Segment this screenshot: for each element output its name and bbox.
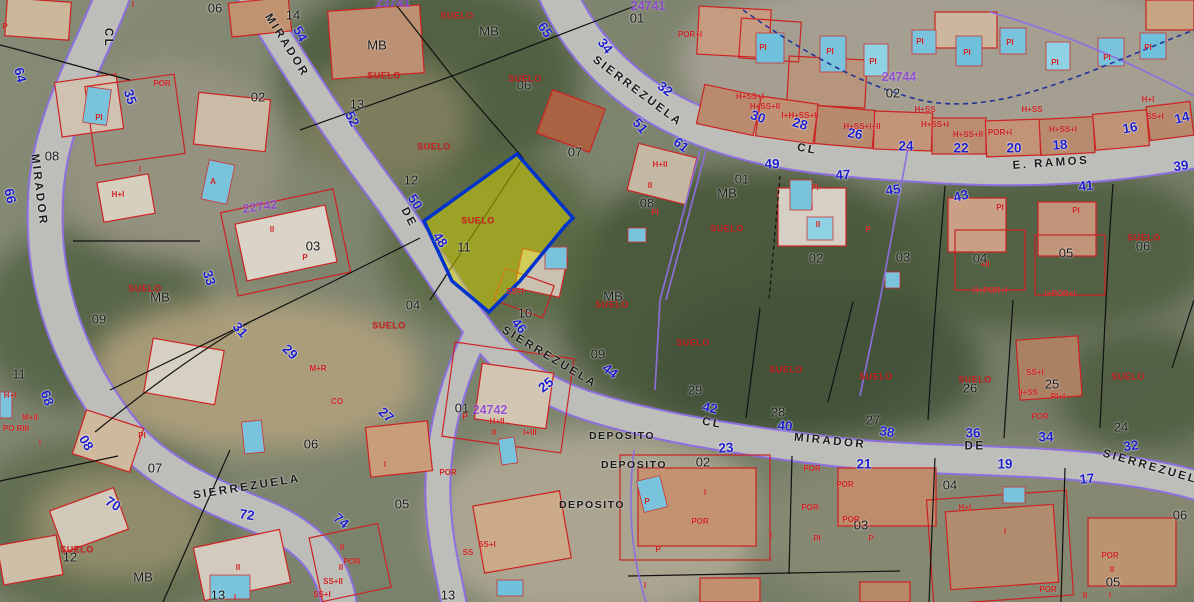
- building-annotation-label: PI: [1006, 39, 1014, 47]
- parcel-number-label: 06: [304, 438, 318, 451]
- parcel-number-label: 05: [1059, 247, 1073, 260]
- street-number-label: 31: [230, 320, 250, 340]
- parcel-number-label: 06: [208, 2, 222, 15]
- suelo-label: SUELO: [440, 12, 474, 21]
- building-annotation-label: SS+I: [478, 541, 496, 549]
- building-annotation-label: II: [236, 564, 240, 572]
- parcel-number-label: 11: [12, 368, 26, 381]
- building-annotation-label: PI: [1072, 207, 1080, 215]
- suelo-label: SUELO: [859, 373, 893, 382]
- parcel-number-label: 13: [211, 589, 225, 602]
- parcel-number-label: 04: [943, 479, 957, 492]
- building-annotation-label: II: [816, 221, 820, 229]
- deposito-label: DEPOSITO: [589, 431, 655, 442]
- street-number-label: 51: [630, 116, 650, 136]
- building-annotation-label: H+SS: [1021, 106, 1042, 114]
- building-annotation-label: POR: [343, 558, 360, 566]
- building-annotation-label: POR: [801, 504, 818, 512]
- street-number-label: 32: [1123, 438, 1140, 453]
- building-annotation-label: PI: [1144, 44, 1152, 52]
- building-annotation-label: P: [462, 413, 467, 421]
- building-annotation-label: POR: [153, 80, 170, 88]
- building-annotation-label: M+R: [309, 365, 326, 373]
- parcel-number-label: 02: [251, 91, 265, 104]
- building-annotation-label: I+POR+I: [1044, 290, 1075, 298]
- street-number-label: 29: [280, 342, 300, 362]
- parcel-number-label: 11: [457, 241, 471, 254]
- suelo-label: SUELO: [60, 546, 94, 555]
- building-annotation-label: I: [234, 594, 236, 602]
- building-annotation-label: II: [1083, 592, 1087, 600]
- street-number-label: 34: [1038, 430, 1053, 444]
- building-annotation-label: H+II: [653, 161, 668, 169]
- building-annotation-label: II: [648, 182, 652, 190]
- building-annotation-label: A: [210, 178, 216, 186]
- street-number-label: 45: [885, 182, 902, 197]
- parcel-number-label: MB: [133, 571, 153, 584]
- building-annotation-label: PI: [138, 432, 146, 440]
- suelo-label: SUELO: [958, 376, 992, 385]
- parcel-number-label: 05: [395, 498, 409, 511]
- parcel-number-label: 03: [896, 251, 910, 264]
- building-annotation-label: P: [868, 535, 873, 543]
- building-annotation-label: I: [132, 1, 134, 9]
- parcel-id-label: 22742: [242, 198, 278, 215]
- street-number-label: 72: [239, 507, 256, 522]
- building-annotation-label: II: [339, 564, 343, 572]
- parcel-number-label: 14: [286, 9, 300, 22]
- building-annotation-label: I: [384, 461, 386, 469]
- building-annotation-label: POR: [1039, 586, 1056, 594]
- street-name-label: SIERREZUELA: [1101, 448, 1194, 489]
- parcel-number-label: 02: [696, 456, 710, 469]
- building-annotation-label: POR+I: [988, 129, 1012, 137]
- building-annotation-label: PI: [916, 38, 924, 46]
- building-annotation-label: I: [1004, 528, 1006, 536]
- parcel-number-label: 03: [306, 240, 320, 253]
- building-annotation-label: POR+I: [678, 31, 702, 39]
- suelo-label: SUELO: [710, 225, 744, 234]
- suelo-label: SUELO: [676, 339, 710, 348]
- street-name-label: MIRADOR: [28, 153, 48, 226]
- building-annotation-label: H+I: [4, 392, 17, 400]
- parcel-number-label: 24: [1114, 421, 1128, 434]
- street-number-label: 25: [536, 375, 556, 395]
- street-number-label: 35: [121, 88, 138, 106]
- street-number-label: 36: [965, 426, 980, 440]
- parcel-number-label: 09: [92, 313, 106, 326]
- street-number-label: 70: [103, 494, 123, 513]
- street-number-label: 64: [12, 66, 29, 84]
- suelo-label: SUELO: [367, 72, 401, 81]
- street-number-label: 22: [953, 141, 968, 155]
- building-annotation-label: H+SS: [914, 106, 935, 114]
- parcel-number-label: 01: [630, 12, 644, 25]
- building-annotation-label: PI+I: [1051, 393, 1065, 401]
- parcel-number-label: 06: [1173, 509, 1187, 522]
- suelo-label: SUELO: [128, 285, 162, 294]
- building-annotation-label: SS+I: [1026, 369, 1044, 377]
- building-annotation-label: PI: [651, 209, 659, 217]
- street-number-label: 32: [655, 79, 675, 99]
- building-annotation-label: POR: [1101, 552, 1118, 560]
- building-annotation-label: I: [811, 204, 813, 212]
- deposito-label: DEPOSITO: [601, 460, 667, 471]
- building-annotation-label: P: [302, 254, 307, 262]
- street-number-label: 74: [331, 511, 351, 531]
- parcel-number-label: MB: [479, 25, 499, 38]
- street-number-label: 52: [343, 109, 362, 129]
- map-label-layer: CLMIRADORMIRADORSIERREZUELACLE. RAMOSDES…: [0, 0, 1194, 602]
- street-number-label: 43: [952, 188, 970, 205]
- street-number-label: 23: [718, 441, 734, 456]
- building-annotation-label: POR: [691, 518, 708, 526]
- building-annotation-label: M+II: [22, 414, 38, 422]
- building-annotation-label: H+SS+I: [921, 121, 949, 129]
- street-number-label: 24: [898, 139, 913, 153]
- building-annotation-label: PI: [869, 58, 877, 66]
- street-number-label: 14: [1173, 110, 1191, 127]
- building-annotation-label: POR: [842, 516, 859, 524]
- parcel-number-label: 02: [809, 252, 823, 265]
- street-number-label: 40: [777, 419, 793, 434]
- parcel-number-label: 05: [1106, 576, 1120, 589]
- street-number-label: 19: [997, 457, 1012, 471]
- street-number-label: 21: [856, 457, 871, 471]
- building-annotation-label: SS: [463, 549, 474, 557]
- street-name-label: CL: [101, 28, 113, 48]
- building-annotation-label: CO: [331, 398, 343, 406]
- parcel-id-label: 24742: [473, 404, 508, 417]
- building-annotation-label: H+I: [1142, 96, 1155, 104]
- building-annotation-label: SS+II: [323, 578, 343, 586]
- parcel-number-label: 01: [735, 173, 749, 186]
- street-number-label: 08: [76, 433, 95, 453]
- suelo-label: SUELO: [508, 75, 542, 84]
- building-annotation-label: H+POR+I: [973, 287, 1008, 295]
- street-number-label: 48: [430, 230, 450, 250]
- building-annotation-label: +II: [980, 261, 989, 269]
- building-annotation-label: PI: [1051, 59, 1059, 67]
- street-name-label: MIRADOR: [793, 432, 866, 451]
- parcel-number-label: 27: [866, 414, 880, 427]
- cadastral-map-viewport[interactable]: CLMIRADORMIRADORSIERREZUELACLE. RAMOSDES…: [0, 0, 1194, 602]
- parcel-number-label: 09: [591, 348, 605, 361]
- building-annotation-label: H+I: [112, 191, 125, 199]
- building-annotation-label: II: [270, 226, 274, 234]
- building-annotation-label: I: [704, 489, 706, 497]
- street-number-label: 38: [879, 424, 896, 439]
- street-number-label: 47: [835, 168, 851, 183]
- building-annotation-label: H+I: [959, 504, 972, 512]
- street-number-label: 34: [595, 36, 615, 56]
- street-name-label: SIERREZUELA: [192, 474, 301, 502]
- building-annotation-label: PI: [811, 184, 819, 192]
- street-number-label: 20: [1006, 141, 1021, 155]
- building-annotation-label: PI: [996, 204, 1004, 212]
- street-name-label: DE: [965, 441, 986, 453]
- building-annotation-label: SS+I: [313, 591, 331, 599]
- parcel-number-label: 07: [148, 462, 162, 475]
- parcel-number-label: 08: [45, 150, 59, 163]
- building-annotation-label: PI: [759, 44, 767, 52]
- street-number-label: 66: [2, 187, 18, 205]
- parcel-id-label: 24741: [631, 0, 666, 12]
- building-annotation-label: H+SS+I: [736, 93, 764, 101]
- building-annotation-label: I: [770, 532, 772, 540]
- suelo-label: SUELO: [1127, 234, 1161, 243]
- street-number-label: 33: [200, 269, 217, 287]
- suelo-label: SUELO: [417, 143, 451, 152]
- building-annotation-label: PI: [1103, 54, 1111, 62]
- building-annotation-label: POR: [803, 465, 820, 473]
- building-annotation-label: SS+I: [1146, 113, 1164, 121]
- building-annotation-label: I: [644, 582, 646, 590]
- suelo-label: SUELO: [461, 217, 495, 226]
- street-number-label: 39: [1173, 158, 1190, 173]
- building-annotation-label: H+SS+II: [750, 103, 780, 111]
- street-number-label: 16: [1121, 120, 1138, 136]
- building-annotation-label: I: [39, 439, 41, 447]
- street-number-label: 65: [535, 20, 555, 40]
- building-annotation-label: POR: [836, 481, 853, 489]
- street-number-label: 42: [701, 400, 719, 416]
- building-annotation-label: H+SS+I: [1049, 126, 1077, 134]
- building-annotation-label: I: [1109, 592, 1111, 600]
- building-annotation-label: I: [139, 166, 141, 174]
- suelo-label: SUELO: [769, 366, 803, 375]
- parcel-number-label: MB: [367, 39, 387, 52]
- building-annotation-label: H+II: [490, 418, 505, 426]
- building-annotation-label: POR: [1031, 413, 1048, 421]
- street-number-label: 68: [38, 389, 56, 408]
- building-annotation-label: POR: [439, 469, 456, 477]
- building-annotation-label: II: [340, 544, 344, 552]
- building-annotation-label: II+SS: [1018, 389, 1038, 397]
- suelo-label: SUELO: [1111, 373, 1145, 382]
- building-annotation-label: P: [2, 23, 7, 31]
- parcel-number-label: 13: [350, 98, 364, 111]
- street-name-label: E. RAMOS: [1012, 156, 1089, 173]
- building-annotation-label: I+III: [523, 429, 537, 437]
- parcel-number-label: 29: [688, 384, 702, 397]
- building-annotation-label: H+SS+II: [953, 131, 983, 139]
- street-number-label: 41: [1078, 179, 1094, 194]
- building-annotation-label: PI: [826, 48, 834, 56]
- parcel-number-label: 04: [406, 299, 420, 312]
- street-number-label: 18: [1052, 138, 1068, 153]
- building-annotation-label: II: [1110, 566, 1114, 574]
- building-annotation-label: SS+I: [506, 288, 524, 296]
- building-annotation-label: PO RIII: [3, 425, 29, 433]
- building-annotation-label: PI: [813, 535, 821, 543]
- building-annotation-label: P: [865, 226, 870, 234]
- suelo-label: SUELO: [372, 322, 406, 331]
- building-annotation-label: PI: [963, 49, 971, 57]
- parcel-number-label: 07: [568, 146, 582, 159]
- street-number-label: 49: [764, 157, 779, 171]
- parcel-number-label: MB: [717, 187, 737, 200]
- parcel-id-label: 24744: [882, 71, 917, 84]
- parcel-number-label: 25: [1045, 378, 1059, 391]
- building-annotation-label: PI: [95, 114, 103, 122]
- street-name-label: CL: [701, 417, 723, 432]
- parcel-id-label: 23741: [376, 0, 411, 9]
- building-annotation-label: P: [644, 498, 649, 506]
- street-number-label: 17: [1079, 472, 1095, 487]
- deposito-label: DEPOSITO: [559, 500, 625, 511]
- parcel-number-label: 12: [404, 174, 418, 187]
- parcel-number-label: 02: [886, 87, 900, 100]
- building-annotation-label: H+SS+I+II: [843, 123, 880, 131]
- street-number-label: 54: [291, 24, 310, 44]
- building-annotation-label: P: [655, 546, 660, 554]
- parcel-number-label: 13: [441, 589, 455, 602]
- building-annotation-label: II: [492, 429, 496, 437]
- building-annotation-label: I+H+SS+II: [781, 112, 818, 120]
- suelo-label: SUELO: [595, 301, 629, 310]
- street-number-label: 44: [600, 361, 620, 381]
- street-number-label: 27: [376, 405, 396, 425]
- street-name-label: CL: [796, 143, 818, 158]
- street-number-label: 61: [671, 135, 691, 155]
